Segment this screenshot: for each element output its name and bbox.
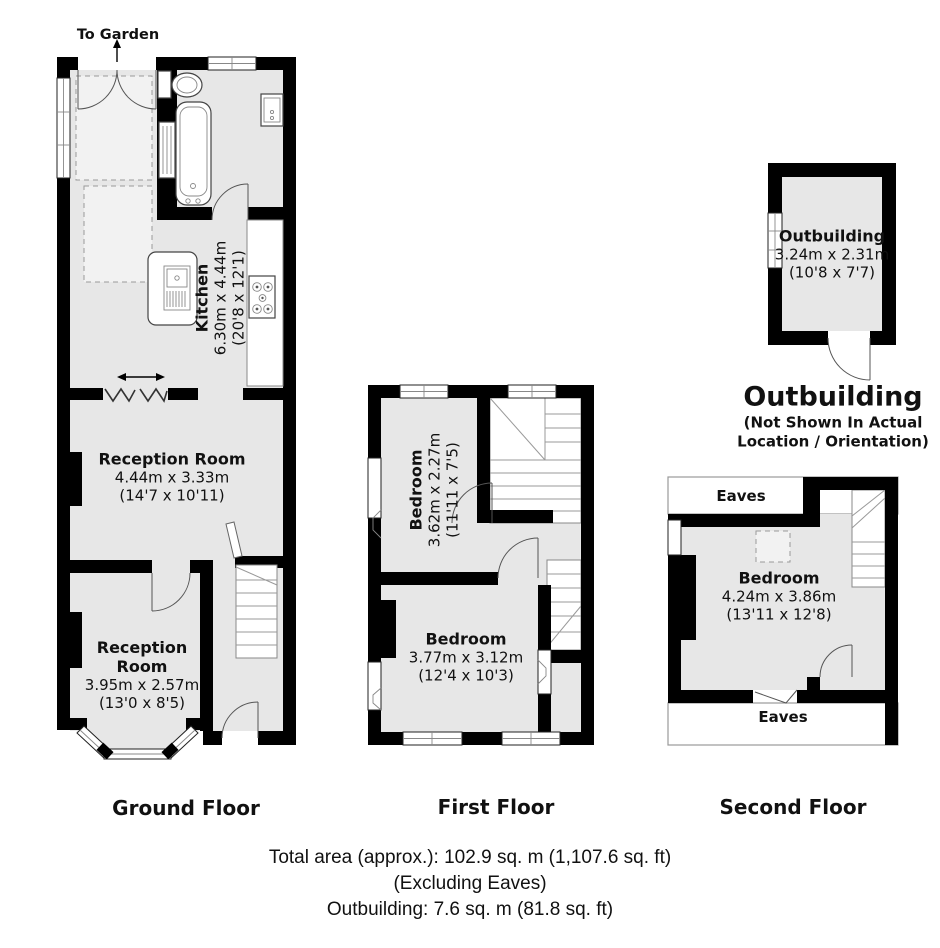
wall xyxy=(57,560,152,573)
bedroom-2-label: Bedroom 3.77m x 3.12m (12'4 x 10'3) xyxy=(409,629,523,684)
stairs-icon xyxy=(852,490,885,587)
wall xyxy=(243,388,283,400)
outbuilding-door xyxy=(828,331,870,380)
total-area-text: Total area (approx.): 102.9 sq. m (1,107… xyxy=(269,847,671,869)
wall xyxy=(168,388,198,400)
island-sink-icon xyxy=(148,252,197,325)
wall xyxy=(490,510,553,523)
window xyxy=(208,57,256,70)
room-dims-metric: 4.44m x 3.33m xyxy=(98,469,245,487)
chimney-breast xyxy=(70,612,82,668)
eaves-top-label: Eaves xyxy=(716,487,765,505)
second-floor-label: Second Floor xyxy=(720,795,867,819)
room-dims-imperial: (12'4 x 10'3) xyxy=(409,667,523,685)
room-dims-metric: 3.77m x 3.12m xyxy=(409,649,523,667)
chimney-breast xyxy=(681,555,696,640)
rooflight-dashed-area-2 xyxy=(84,186,152,282)
room-name: Kitchen xyxy=(192,241,211,355)
window-recess xyxy=(668,520,681,555)
wall xyxy=(200,560,213,731)
wall xyxy=(157,207,212,220)
excluding-eaves-text: (Excluding Eaves) xyxy=(393,873,546,895)
reception-room-1-label: Reception Room 4.44m x 3.33m (14'7 x 10'… xyxy=(98,449,245,504)
to-garden-label: To Garden xyxy=(77,27,159,43)
hob-icon xyxy=(249,276,275,318)
radiator-icon xyxy=(159,122,175,178)
first-floor-label: First Floor xyxy=(438,795,555,819)
wall xyxy=(203,731,222,745)
chimney-breast xyxy=(381,600,396,658)
wall xyxy=(668,514,820,527)
skylight-dashed xyxy=(756,531,790,562)
outbuilding-section-label: Outbuilding xyxy=(743,382,922,413)
stairs-icon xyxy=(490,398,581,523)
toilet-icon xyxy=(158,71,202,98)
outbuilding-area-text: Outbuilding: 7.6 sq. m (81.8 sq. ft) xyxy=(327,899,613,921)
room-dims-metric: 6.30m x 4.44m xyxy=(212,241,230,355)
window xyxy=(502,732,560,745)
room-dims-imperial: (14'7 x 10'11) xyxy=(98,487,245,505)
room-name: Bedroom xyxy=(722,568,836,587)
room-name: Outbuilding xyxy=(775,226,889,245)
wall xyxy=(668,690,753,703)
chimney-breast xyxy=(70,452,82,506)
window xyxy=(57,78,70,178)
wall xyxy=(885,477,898,745)
room-dims-imperial: (10'8 x 7'7) xyxy=(775,264,889,282)
wall xyxy=(57,388,103,400)
outbuilding-note-line1: (Not Shown In Actual xyxy=(737,413,929,432)
wall xyxy=(283,57,296,745)
first-floor-plan xyxy=(355,375,605,755)
wall xyxy=(581,385,594,745)
room-name: Bedroom xyxy=(409,629,523,648)
room-name: Bedroom xyxy=(406,433,425,547)
window-recess xyxy=(538,650,551,694)
wall xyxy=(803,477,820,520)
window xyxy=(403,732,462,745)
bedroom-1-label: Bedroom 3.62m x 2.27m (11'11 x 7'5) xyxy=(406,433,461,547)
wall xyxy=(807,677,820,690)
room-name: Reception Room xyxy=(98,449,245,468)
window xyxy=(400,385,448,398)
window xyxy=(508,385,556,398)
wall xyxy=(547,650,594,663)
eaves-door-leaf xyxy=(755,690,797,703)
wall xyxy=(248,207,296,220)
second-bedroom-label: Bedroom 4.24m x 3.86m (13'11 x 12'8) xyxy=(722,568,836,623)
wall xyxy=(797,690,898,703)
outbuilding-note: (Not Shown In Actual Location / Orientat… xyxy=(737,413,929,451)
room-dims-metric: 4.24m x 3.86m xyxy=(722,588,836,606)
room-dims-metric: 3.24m x 2.31m xyxy=(775,246,889,264)
eaves-bottom-label: Eaves xyxy=(758,708,807,726)
room-dims-imperial: (20'8 x 12'1) xyxy=(230,241,248,355)
room-dims-metric: 3.62m x 2.27m xyxy=(426,433,444,547)
reception-room-2-label: Reception Room 3.95m x 2.57m (13'0 x 8'5… xyxy=(85,638,199,712)
rooflight-dashed-area xyxy=(76,76,152,180)
kitchen-label: Kitchen 6.30m x 4.44m (20'8 x 12'1) xyxy=(192,241,247,355)
stairs-icon xyxy=(547,560,581,650)
room-dims-imperial: (13'0 x 8'5) xyxy=(85,694,199,712)
window-recess xyxy=(368,662,381,710)
room-dims-imperial: (13'11 x 12'8) xyxy=(722,606,836,624)
outbuilding-note-line2: Location / Orientation) xyxy=(737,432,929,451)
room-name: Reception Room xyxy=(89,638,195,676)
sink-icon xyxy=(261,94,283,126)
wall xyxy=(368,572,498,585)
wall xyxy=(258,731,296,745)
room-dims-metric: 3.95m x 2.57m xyxy=(85,676,199,694)
floorplan-canvas: To Garden Kitchen 6.30m x 4.44m (20'8 x … xyxy=(0,0,940,948)
wall xyxy=(477,398,490,523)
room-dims-imperial: (11'11 x 7'5) xyxy=(444,433,462,547)
outbuilding-room-label: Outbuilding 3.24m x 2.31m (10'8 x 7'7) xyxy=(775,226,889,281)
ground-floor-label: Ground Floor xyxy=(112,796,260,820)
stairs-icon xyxy=(236,565,277,658)
bath-icon xyxy=(176,102,211,205)
